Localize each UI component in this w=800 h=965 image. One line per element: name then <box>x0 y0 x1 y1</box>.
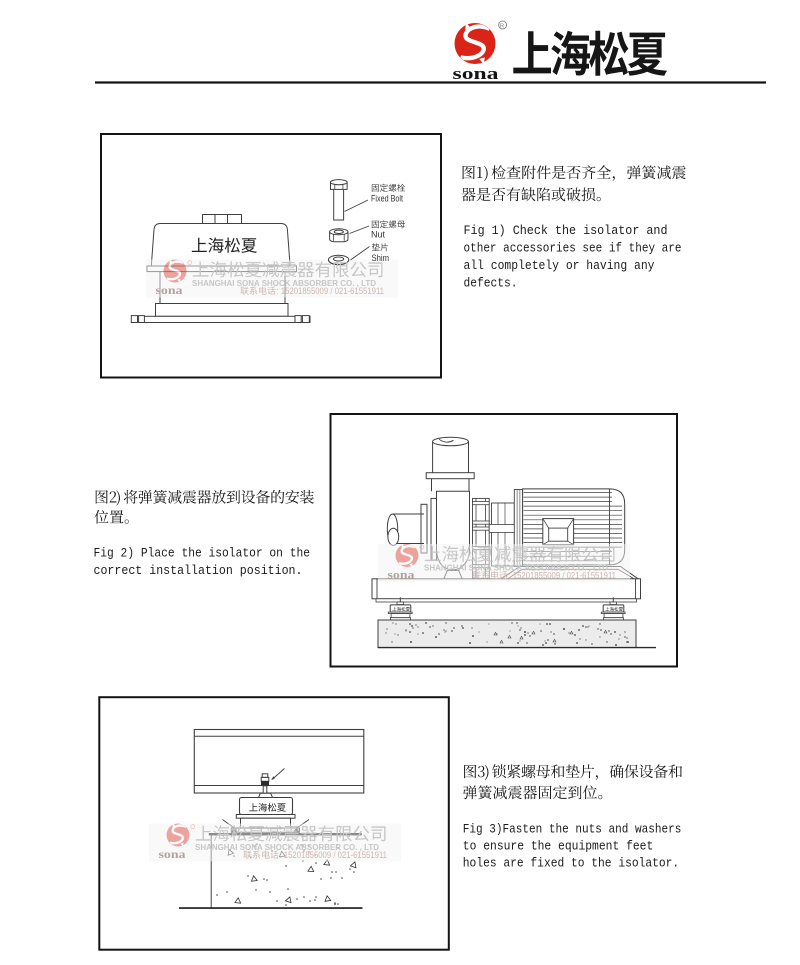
svg-text:Fig 2) Place the isolator on t: Fig 2) Place the isolator on the <box>94 547 311 561</box>
svg-text:correct installation position.: correct installation position. <box>94 564 303 578</box>
svg-text:other accessories see if they: other accessories see if they are <box>464 242 682 256</box>
svg-text:to ensure the equipment feet: to ensure the equipment feet <box>463 840 654 854</box>
svg-text:Fixed Bolt: Fixed Bolt <box>371 194 403 204</box>
svg-text:defects.: defects. <box>464 277 518 291</box>
svg-text:Fig 1) Check the isolator and: Fig 1) Check the isolator and <box>464 224 668 238</box>
svg-text:sona: sona <box>453 64 499 83</box>
svg-text:holes are fixed to the isolato: holes are fixed to the isolator. <box>463 857 679 871</box>
svg-text:Fig 3)Fasten the nuts and wash: Fig 3)Fasten the nuts and washers <box>463 823 682 837</box>
svg-text:Nut: Nut <box>371 230 385 240</box>
svg-text:all completely or having any: all completely or having any <box>464 259 655 273</box>
svg-text:R: R <box>500 24 504 30</box>
svg-text:Shim: Shim <box>372 253 390 263</box>
